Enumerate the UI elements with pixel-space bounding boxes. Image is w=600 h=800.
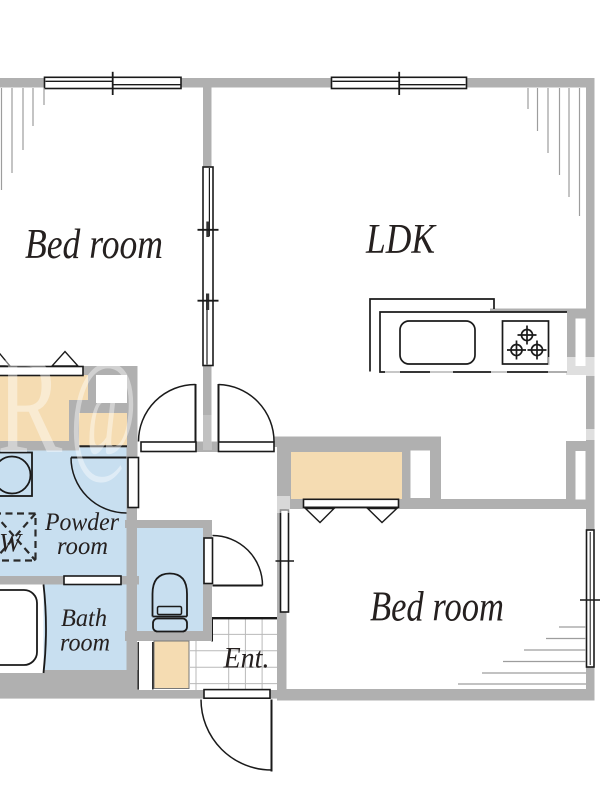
svg-text:Powder: Powder bbox=[44, 509, 119, 536]
svg-text:@: @ bbox=[70, 333, 137, 487]
svg-text:Ent.: Ent. bbox=[223, 642, 270, 675]
svg-text:room: room bbox=[57, 533, 108, 560]
svg-text:LDK: LDK bbox=[365, 217, 437, 263]
svg-text:room: room bbox=[60, 630, 110, 657]
svg-text:Bath: Bath bbox=[61, 605, 107, 632]
svg-text:W: W bbox=[0, 529, 23, 558]
svg-text:R: R bbox=[0, 328, 63, 483]
svg-text:Bed room: Bed room bbox=[25, 222, 163, 268]
svg-text:Bed room: Bed room bbox=[370, 585, 504, 631]
